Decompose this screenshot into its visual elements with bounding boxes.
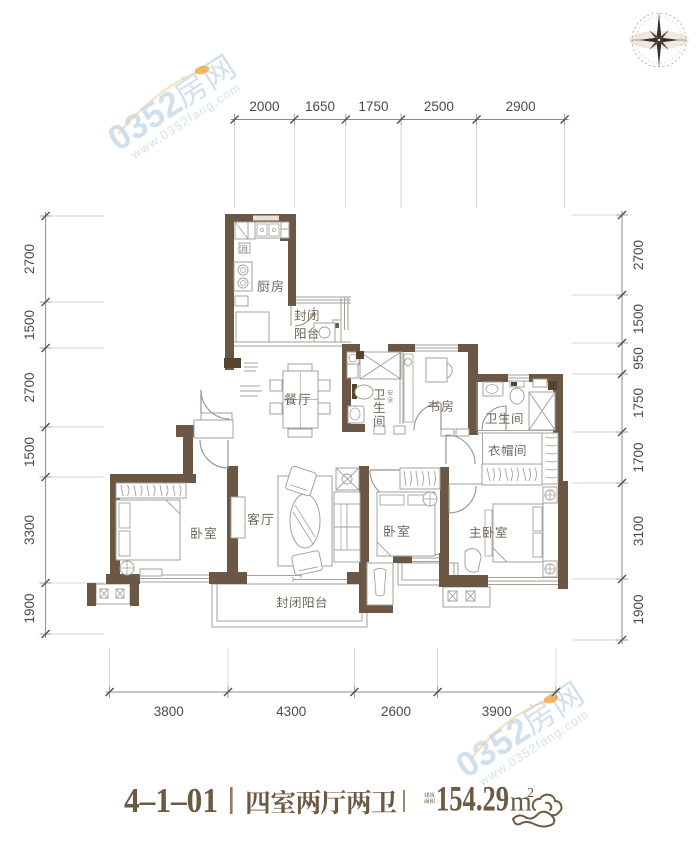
svg-text:154.29: 154.29 [436,779,509,819]
svg-text:1500: 1500 [22,437,37,467]
svg-text:1700: 1700 [631,442,646,472]
svg-text:4300: 4300 [276,704,306,719]
svg-text:1900: 1900 [631,594,646,624]
svg-text:4–1–01: 4–1–01 [124,781,218,820]
svg-text:1650: 1650 [305,99,335,114]
svg-text:1500: 1500 [22,310,37,340]
svg-text:2700: 2700 [22,372,37,402]
svg-text:2700: 2700 [22,244,37,274]
svg-text:2700: 2700 [631,240,646,270]
svg-text:2: 2 [527,786,534,801]
svg-text:3900: 3900 [482,704,512,719]
svg-text:2900: 2900 [506,99,536,114]
svg-text:1500: 1500 [631,304,646,334]
svg-text:950: 950 [631,347,646,370]
svg-text:2000: 2000 [249,99,279,114]
svg-text:2600: 2600 [381,704,411,719]
svg-text:1900: 1900 [22,593,37,623]
svg-text:3100: 3100 [631,516,646,546]
svg-text:2500: 2500 [424,99,454,114]
svg-text:3800: 3800 [154,704,184,719]
svg-text:1750: 1750 [358,99,388,114]
svg-text:1750: 1750 [631,388,646,418]
svg-text:3300: 3300 [22,515,37,545]
